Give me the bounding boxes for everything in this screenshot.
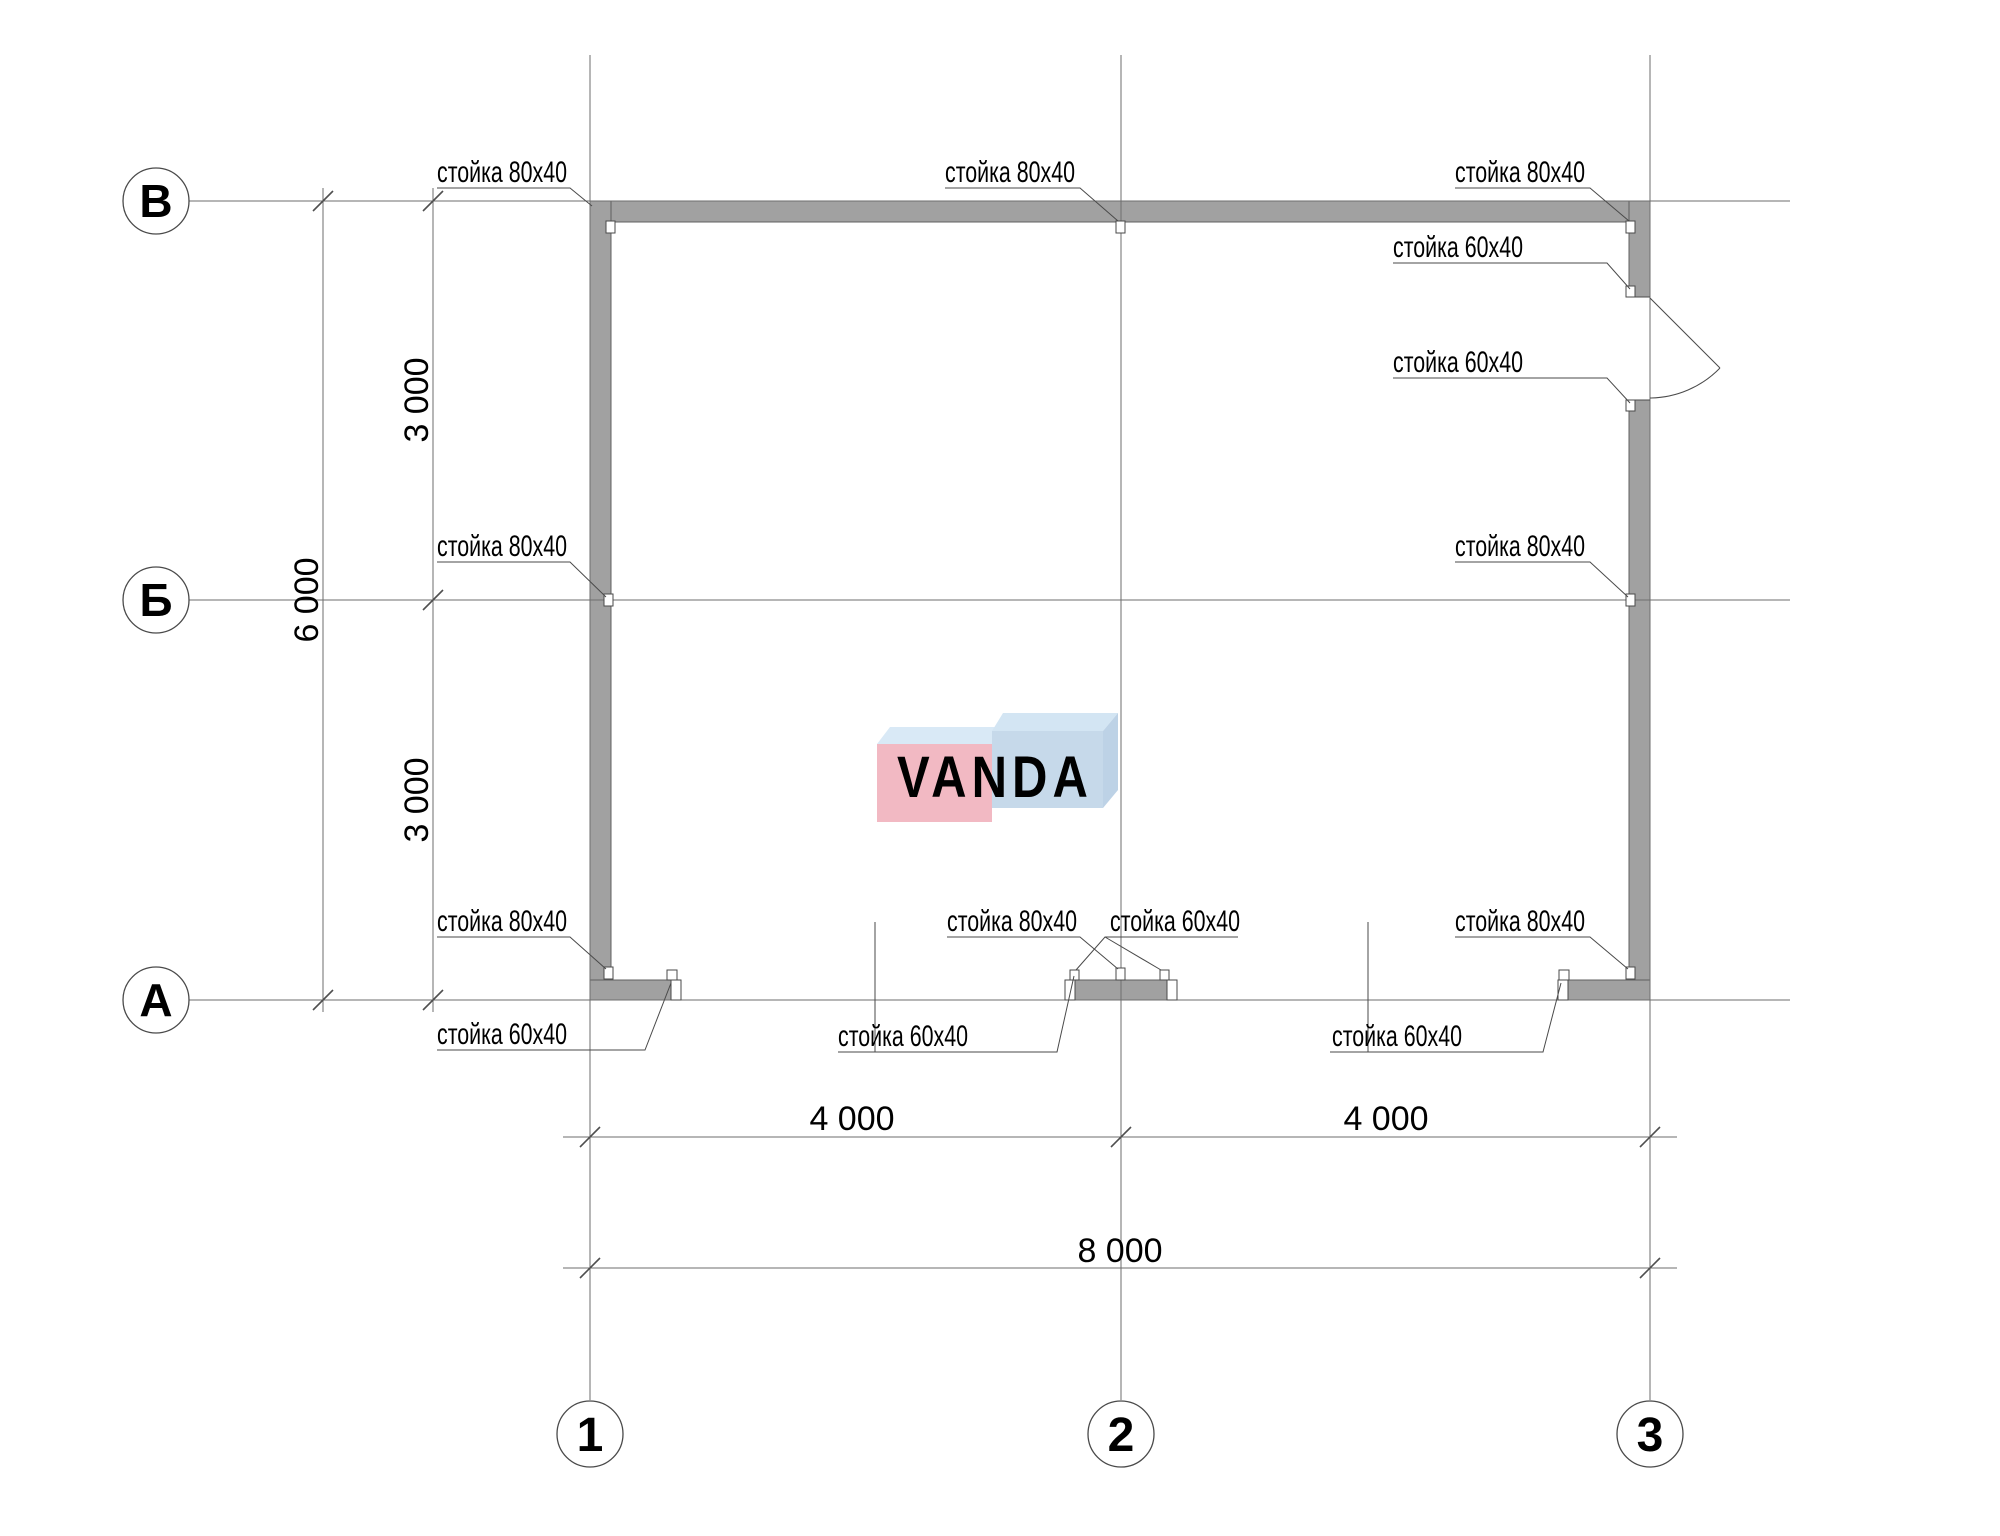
frame-posts [604, 221, 1635, 1000]
post-right-stub-end [1559, 970, 1569, 980]
axis-label-col-3: 3 [1637, 1409, 1664, 1462]
callout-leader [1455, 562, 1628, 597]
floor-plan-drawing: VANDA 3 000 3 000 6 000 [0, 0, 2000, 1536]
callout-leader [437, 188, 592, 206]
post-cap-center-stub-right [1167, 980, 1177, 1000]
post-top-left [606, 221, 615, 233]
door-leaf-line [1650, 298, 1720, 368]
logo-pink-top-face [877, 727, 1006, 744]
dim-value-3000-upper: 3 000 [398, 357, 436, 442]
callout-leader [1393, 263, 1630, 289]
post-door-lower-jamb [1626, 400, 1635, 411]
callout-label: стойка 80х40 [437, 156, 567, 189]
callout-label: стойка 60х40 [1332, 1020, 1462, 1053]
post-top-center [1116, 221, 1125, 233]
callout-label: стойка 60х40 [1110, 905, 1240, 938]
axis-label-row-b: Б [139, 574, 172, 626]
post-left-stub-end [667, 970, 677, 980]
dim-value-3000-lower: 3 000 [398, 757, 436, 842]
callout-leader [1393, 378, 1630, 403]
post-center-stub-left [1070, 970, 1079, 980]
dim-value-4000-right: 4 000 [1343, 1100, 1428, 1138]
axis-label-col-1: 1 [577, 1409, 604, 1462]
wall-right-upper [1629, 201, 1650, 297]
callout-label: стойка 60х40 [1393, 231, 1523, 264]
wall-stub-bottom-right [1568, 980, 1650, 1000]
wall-right-lower [1629, 400, 1650, 1000]
callout-label: стойка 80х40 [1455, 156, 1585, 189]
callout-label: стойка 80х40 [947, 905, 1077, 938]
axis-label-row-v: В [139, 175, 172, 227]
bottom-dimension-chain: 4 000 4 000 8 000 [563, 1100, 1677, 1278]
wall-stub-bottom-left [590, 980, 672, 1000]
vanda-watermark-logo: VANDA [877, 713, 1118, 822]
callout-label: стойка 60х40 [838, 1020, 968, 1053]
dim-value-8000: 8 000 [1077, 1232, 1162, 1270]
dim-value-4000-left: 4 000 [809, 1100, 894, 1138]
dim-value-6000: 6 000 [288, 557, 326, 642]
post-cap-center-stub-left [1065, 980, 1075, 1000]
logo-wordmark: VANDA [897, 745, 1093, 810]
callout-label: стойка 80х40 [1455, 905, 1585, 938]
axis-label-col-2: 2 [1108, 1409, 1135, 1462]
post-door-upper-jamb [1626, 286, 1635, 297]
logo-blue-top-face [992, 713, 1118, 731]
callout-label: стойка 80х40 [437, 530, 567, 563]
callout-label: стойка 60х40 [1393, 346, 1523, 379]
post-cap-left-stub [671, 980, 681, 1000]
post-center-stub-middle [1116, 968, 1125, 980]
callout-leader [437, 562, 606, 597]
callout-annotations: стойка 80х40 стойка 80х40 стойка 80х40 с… [437, 156, 1630, 1053]
door-swing [1629, 297, 1720, 400]
floor-plan-page: VANDA 3 000 3 000 6 000 [0, 0, 2000, 1536]
callout-leader [437, 937, 606, 969]
callout-label: стойка 80х40 [437, 905, 567, 938]
callout-leader [947, 937, 1118, 969]
wall-top [590, 201, 1650, 222]
callout-label: стойка 80х40 [945, 156, 1075, 189]
callout-leader [1455, 937, 1628, 969]
axis-label-row-a: А [139, 974, 172, 1026]
post-center-stub-right [1160, 970, 1169, 980]
post-top-right [1626, 221, 1635, 233]
door-swing-arc [1650, 368, 1720, 398]
callout-label: стойка 80х40 [1455, 530, 1585, 563]
callout-label: стойка 60х40 [437, 1018, 567, 1051]
